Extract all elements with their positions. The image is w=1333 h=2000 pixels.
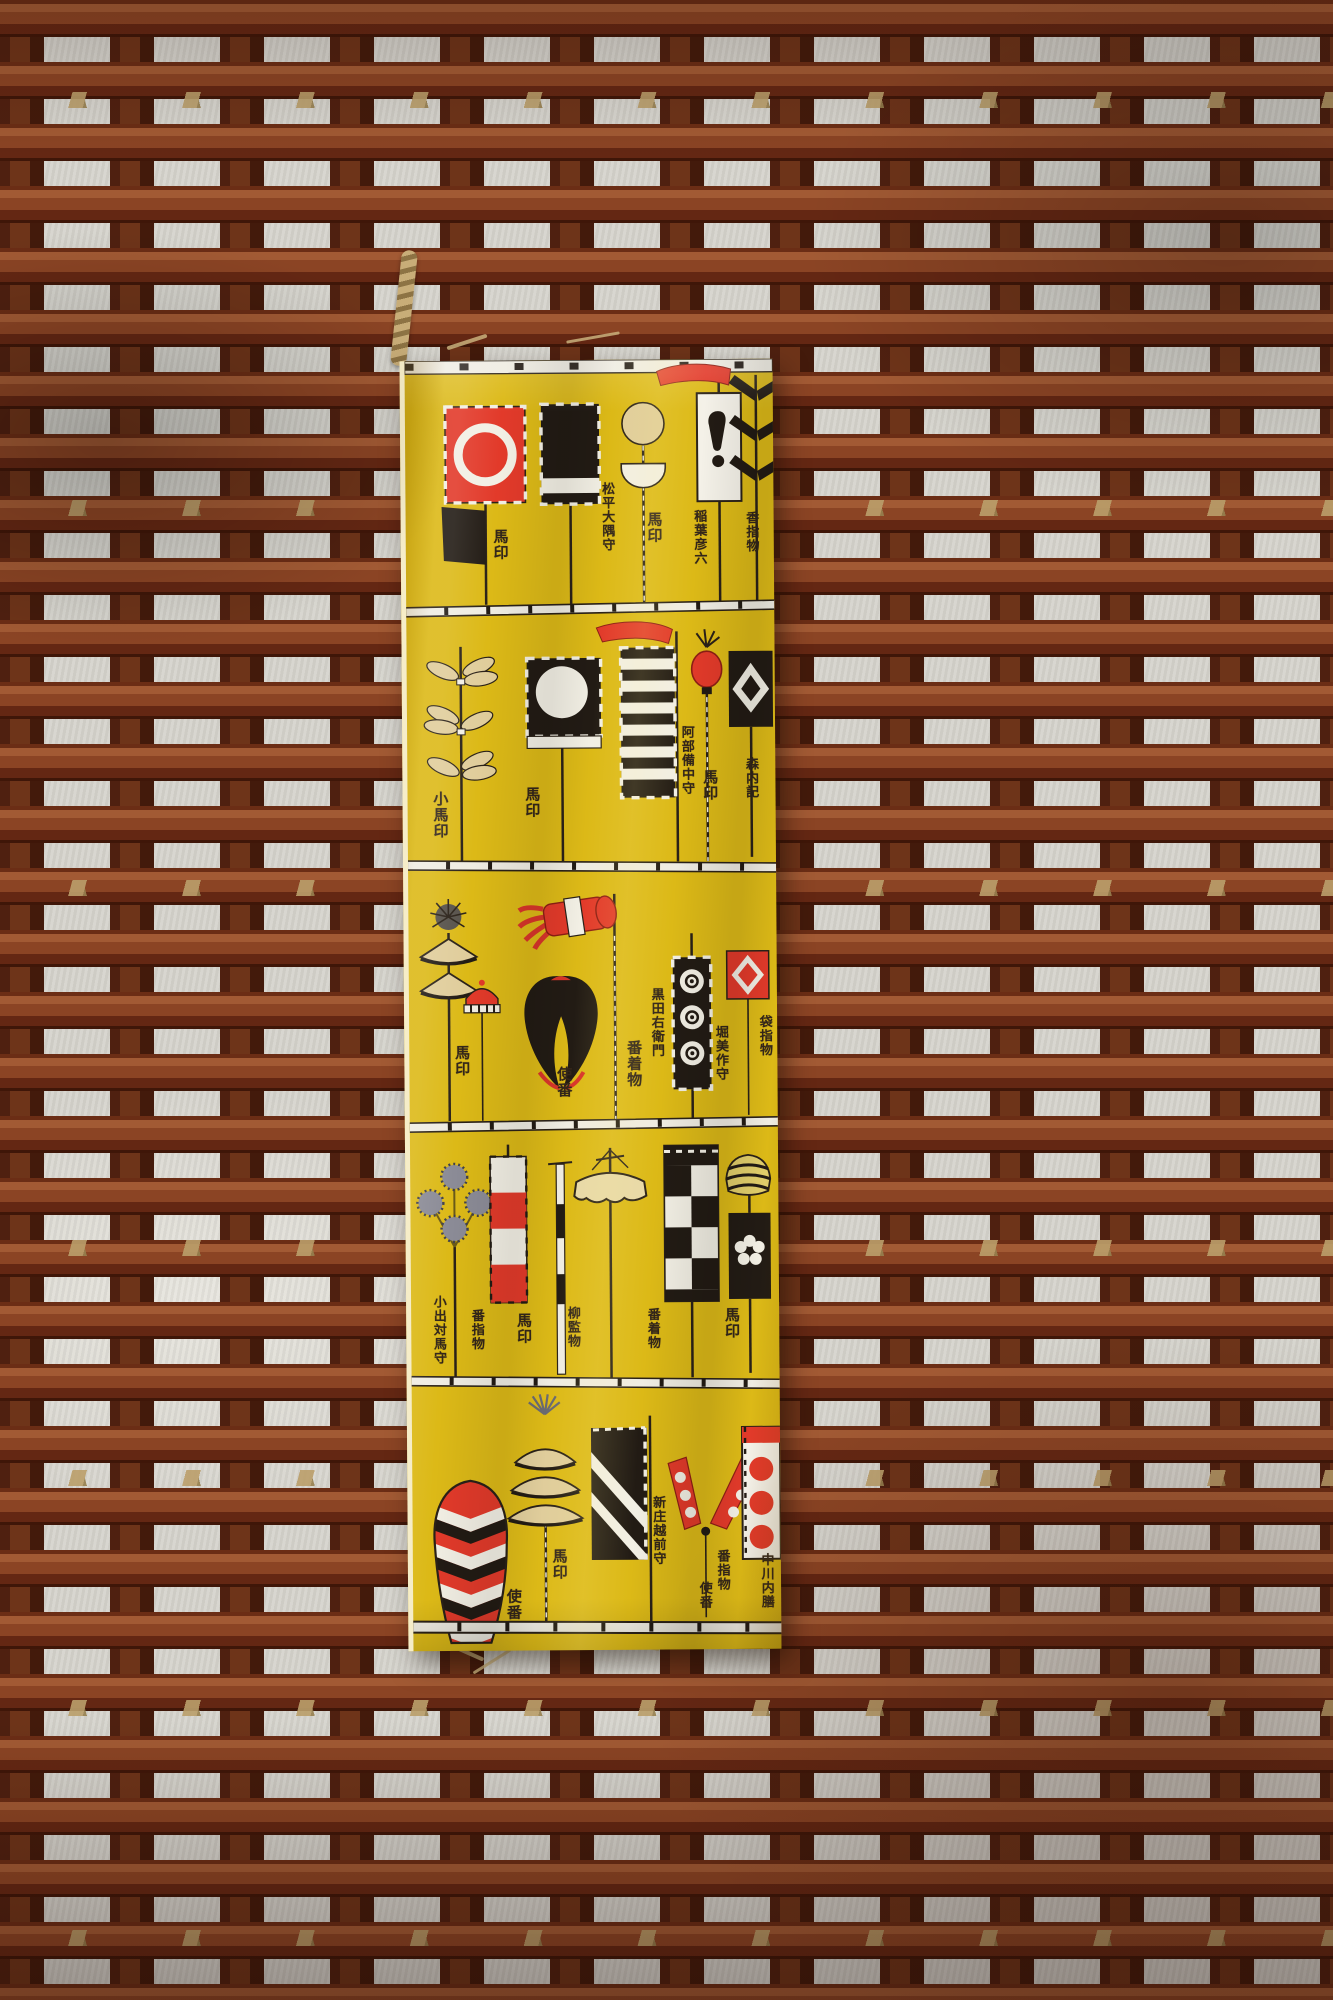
banner-label: 馬印 bbox=[723, 1307, 739, 1339]
row2-banner-graphics bbox=[406, 617, 776, 878]
red-white-block-banner bbox=[490, 1144, 527, 1302]
white-banner-red-streamer bbox=[657, 364, 743, 604]
rope-lashing-row bbox=[0, 1930, 1333, 1946]
red-lantern-standard bbox=[691, 629, 723, 861]
ball-and-cup-standard bbox=[621, 402, 666, 603]
banner-label: 柳監物 bbox=[565, 1306, 579, 1348]
banner-label: 阿部備中守 bbox=[679, 725, 693, 795]
row3-banner-graphics bbox=[408, 875, 778, 1136]
divider-pole bbox=[410, 1377, 780, 1389]
black-banner-white-diamond bbox=[729, 651, 774, 857]
red-circle-banner bbox=[441, 406, 526, 605]
divider-pole bbox=[408, 1117, 778, 1133]
banner-label: 堀美作守 bbox=[713, 1025, 727, 1081]
banner-label: 袋指物 bbox=[757, 1015, 771, 1057]
banner-label: 番指物 bbox=[469, 1309, 483, 1351]
striped-banner-red-streamer bbox=[596, 622, 678, 862]
banner-label: 新庄越前守 bbox=[650, 1495, 664, 1565]
rope-lashing-row bbox=[0, 1700, 1333, 1716]
plum-blossom-banner bbox=[726, 1155, 772, 1373]
fabric-row-1: 馬印 松平大隅守 馬印 稲葉彦六 香指物 bbox=[405, 359, 775, 620]
black-banner-white-stripe bbox=[541, 404, 600, 604]
banner-label: 使番 bbox=[555, 1066, 571, 1098]
banner-label: 馬印 bbox=[515, 1312, 531, 1344]
banner-label: 小馬印 bbox=[432, 791, 448, 839]
banner-label: 馬印 bbox=[646, 511, 662, 543]
divider-pole bbox=[406, 861, 776, 872]
bottom-pole bbox=[412, 1622, 782, 1634]
row5-banner-graphics bbox=[412, 1391, 782, 1652]
banner-label: 番指物 bbox=[715, 1549, 729, 1591]
banner-label: 森内記 bbox=[743, 757, 757, 799]
row1-banner-graphics bbox=[405, 359, 775, 620]
cream-canopy-standard bbox=[574, 1148, 648, 1378]
divider-pole bbox=[405, 600, 775, 617]
banner-label: 馬印 bbox=[701, 769, 717, 801]
bullseye-banner bbox=[673, 933, 712, 1119]
diagonal-stripe-banner bbox=[591, 1416, 651, 1630]
photo-scene: 馬印 松平大隅守 馬印 稲葉彦六 香指物 bbox=[0, 0, 1333, 2000]
banner-label: 番着物 bbox=[645, 1308, 659, 1350]
fabric-row-5: 使番 馬印 新庄越前守 番指物 使番 中川内膳 bbox=[412, 1391, 782, 1652]
banner-label: 馬印 bbox=[453, 1045, 469, 1077]
rope-lashing-row bbox=[0, 92, 1333, 108]
fabric-row-4: 小出対馬守 番指物 馬印 柳監物 番着物 馬印 bbox=[410, 1133, 780, 1394]
fabric-row-3: 馬印 使番 黒田右衛門 番着物 堀美作守 袋指物 bbox=[408, 875, 778, 1136]
banner-label: 使番 bbox=[697, 1581, 711, 1609]
banner-label: 使番 bbox=[505, 1589, 521, 1621]
banner-label: 稲葉彦六 bbox=[692, 509, 706, 565]
banner-label: 小出対馬守 bbox=[431, 1295, 445, 1365]
banner-label: 馬印 bbox=[492, 529, 508, 561]
banner-label: 黒田右衛門 bbox=[649, 987, 663, 1057]
fabric-row-2: 小馬印 馬印 阿部備中守 馬印 森内記 bbox=[406, 617, 776, 878]
banner-label: 馬印 bbox=[523, 786, 539, 818]
banner-label: 番着物 bbox=[625, 1040, 641, 1088]
three-circle-banner bbox=[742, 1427, 781, 1559]
banner-label: 香指物 bbox=[744, 511, 758, 553]
banner-label: 馬印 bbox=[551, 1548, 567, 1580]
black-banner-white-circle bbox=[527, 658, 602, 863]
checkered-banner bbox=[664, 1145, 720, 1377]
row4-banner-graphics bbox=[410, 1133, 780, 1394]
banner-label: 中川内膳 bbox=[759, 1553, 773, 1609]
banner-label: 松平大隅守 bbox=[599, 482, 613, 552]
tenugui-fabric: 馬印 松平大隅守 馬印 稲葉彦六 香指物 bbox=[400, 359, 782, 1652]
